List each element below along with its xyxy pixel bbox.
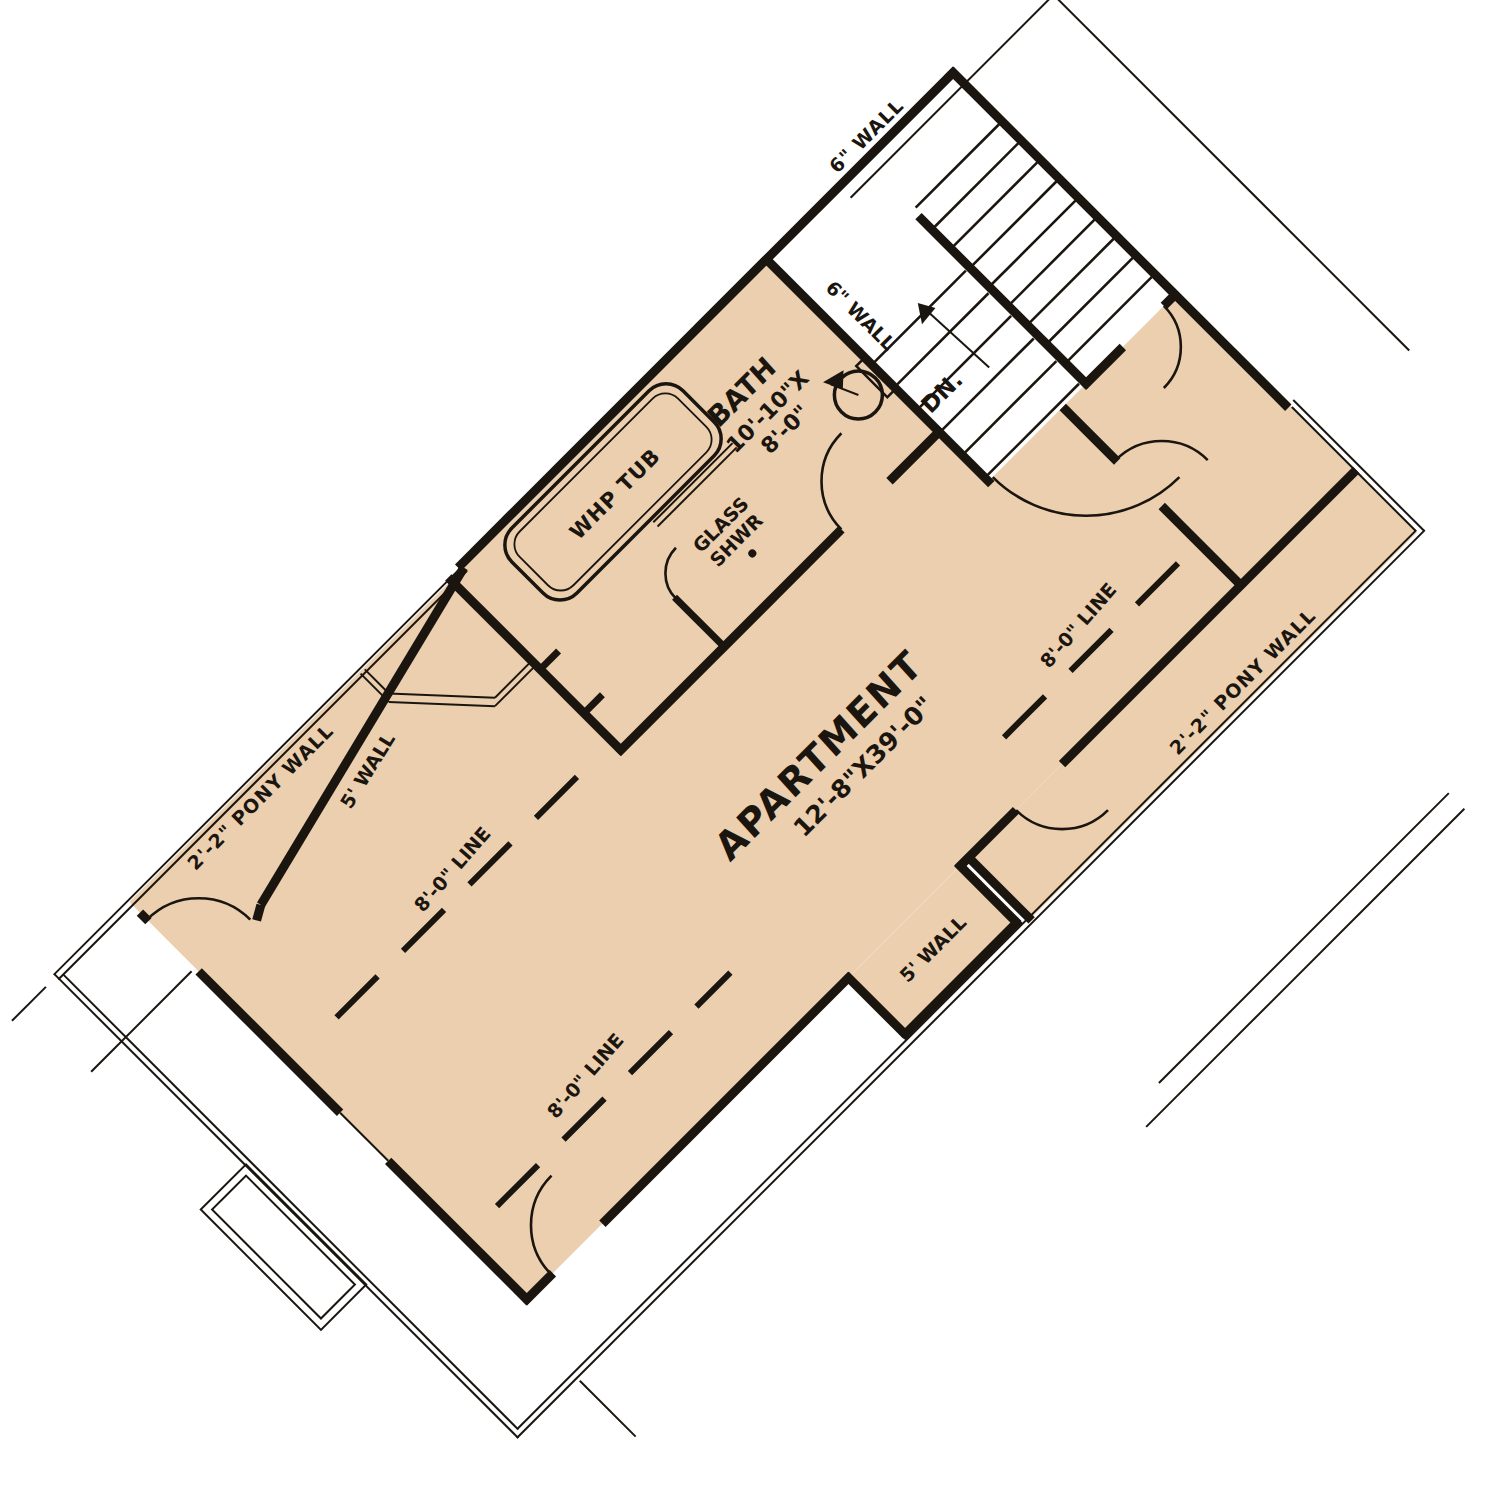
corner-tick-left bbox=[12, 987, 46, 1021]
outside-steps bbox=[201, 1164, 366, 1329]
corner-tick-bottom bbox=[580, 1381, 636, 1437]
floor-plan: DN. 2'-2" PONY WALL 5' WALL 8'-0" LINE 8… bbox=[6, 15, 1477, 1486]
door-sill-line bbox=[91, 971, 191, 1071]
garage-line-1 bbox=[1159, 793, 1449, 1083]
garage-line-2 bbox=[1146, 809, 1464, 1127]
floor-plan-drawing: DN. 2'-2" PONY WALL 5' WALL 8'-0" LINE 8… bbox=[6, 15, 1477, 1486]
outside-steps-inner bbox=[212, 1176, 355, 1319]
